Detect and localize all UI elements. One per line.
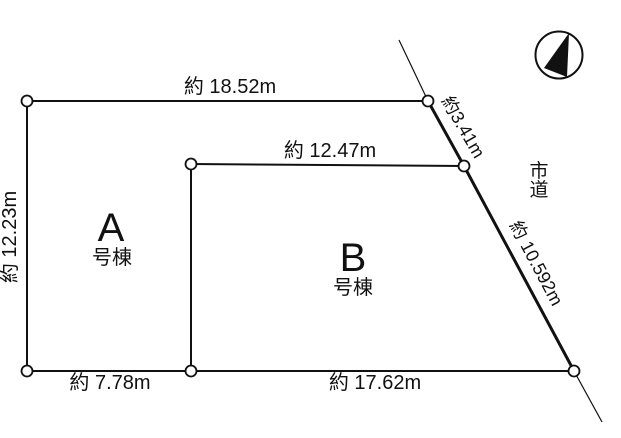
- road-name-char-1: 市: [529, 160, 548, 182]
- bottom-right-edge-dimension: 約 17.62m: [329, 371, 421, 394]
- boundary-vertex-bottom-right: [569, 366, 580, 377]
- lot-b-suffix: 号棟: [333, 276, 373, 299]
- plot-diagram-svg: 約 18.52m 約 12.47m 約 12.23m 約3.41m 約 10.5…: [0, 0, 621, 438]
- boundary-vertex-inner-top: [186, 159, 197, 170]
- left-edge-dimension: 約 12.23m: [0, 191, 21, 283]
- boundary-vertex-bottom-mid: [186, 366, 197, 377]
- top-edge-dimension: 約 18.52m: [184, 75, 276, 98]
- lot-b-letter: B: [340, 236, 367, 280]
- road-name-char-2: 道: [529, 179, 548, 201]
- boundary-vertex-road-mid: [459, 161, 470, 172]
- boundary-vertex-bottom-left: [22, 366, 33, 377]
- plot-diagram: 約 18.52m 約 12.47m 約 12.23m 約3.41m 約 10.5…: [0, 0, 621, 438]
- inner-top-edge-dimension: 約 12.47m: [284, 139, 376, 162]
- lot-a-letter: A: [98, 206, 125, 250]
- bottom-left-edge-dimension: 約 7.78m: [69, 371, 150, 394]
- lot-a-suffix: 号棟: [92, 246, 132, 269]
- road-name-label: 市 道: [529, 160, 548, 201]
- boundary-vertex-top-left: [22, 96, 33, 107]
- boundary-vertex-top-right: [423, 96, 434, 107]
